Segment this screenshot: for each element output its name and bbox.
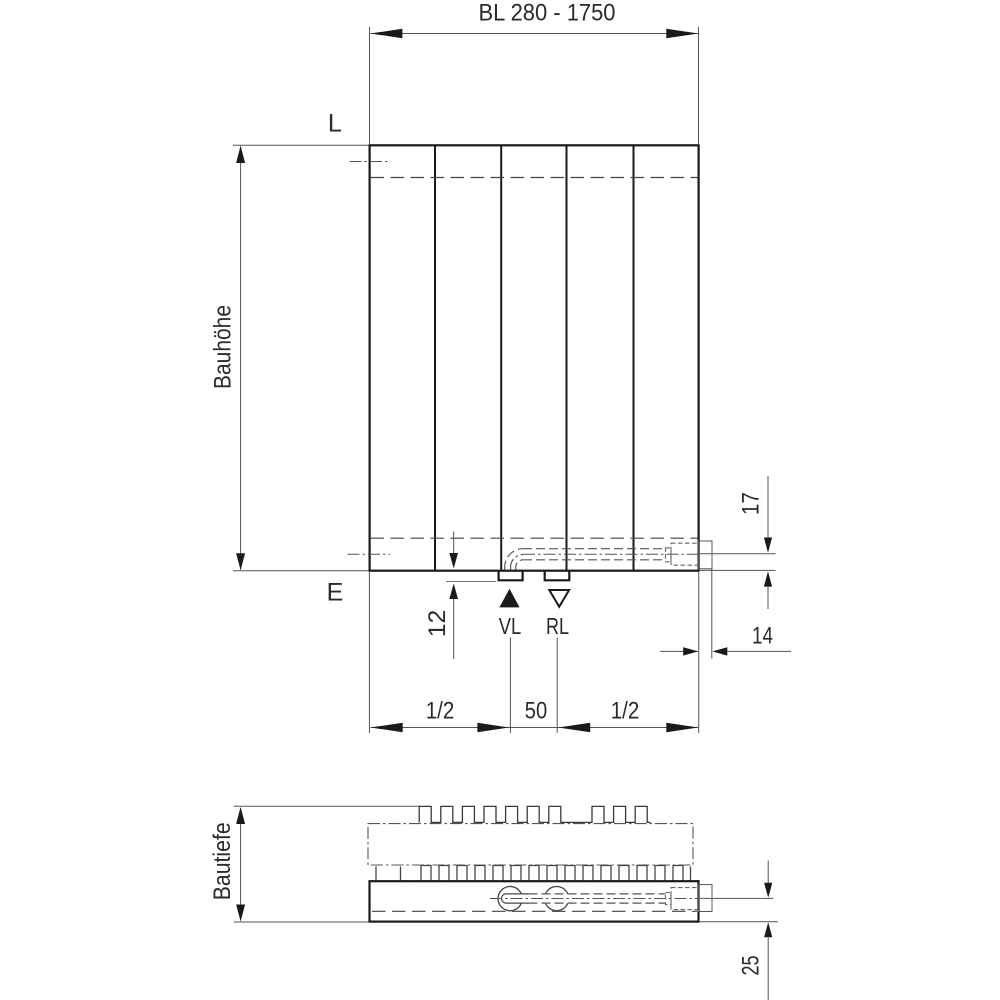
svg-text:E: E	[327, 578, 344, 606]
svg-text:L: L	[328, 110, 342, 138]
svg-text:12: 12	[424, 610, 451, 638]
svg-text:50: 50	[525, 697, 547, 724]
svg-text:14: 14	[752, 622, 773, 649]
svg-text:Bautiefe: Bautiefe	[209, 822, 236, 900]
svg-text:17: 17	[738, 492, 765, 515]
svg-text:BL 280 - 1750: BL 280 - 1750	[479, 0, 616, 27]
svg-text:RL: RL	[546, 613, 569, 639]
svg-text:1/2: 1/2	[611, 697, 640, 724]
svg-text:1/2: 1/2	[426, 697, 455, 724]
svg-text:VL: VL	[499, 613, 522, 639]
svg-text:Bauhöhe: Bauhöhe	[210, 305, 237, 389]
svg-text:25: 25	[738, 956, 765, 976]
